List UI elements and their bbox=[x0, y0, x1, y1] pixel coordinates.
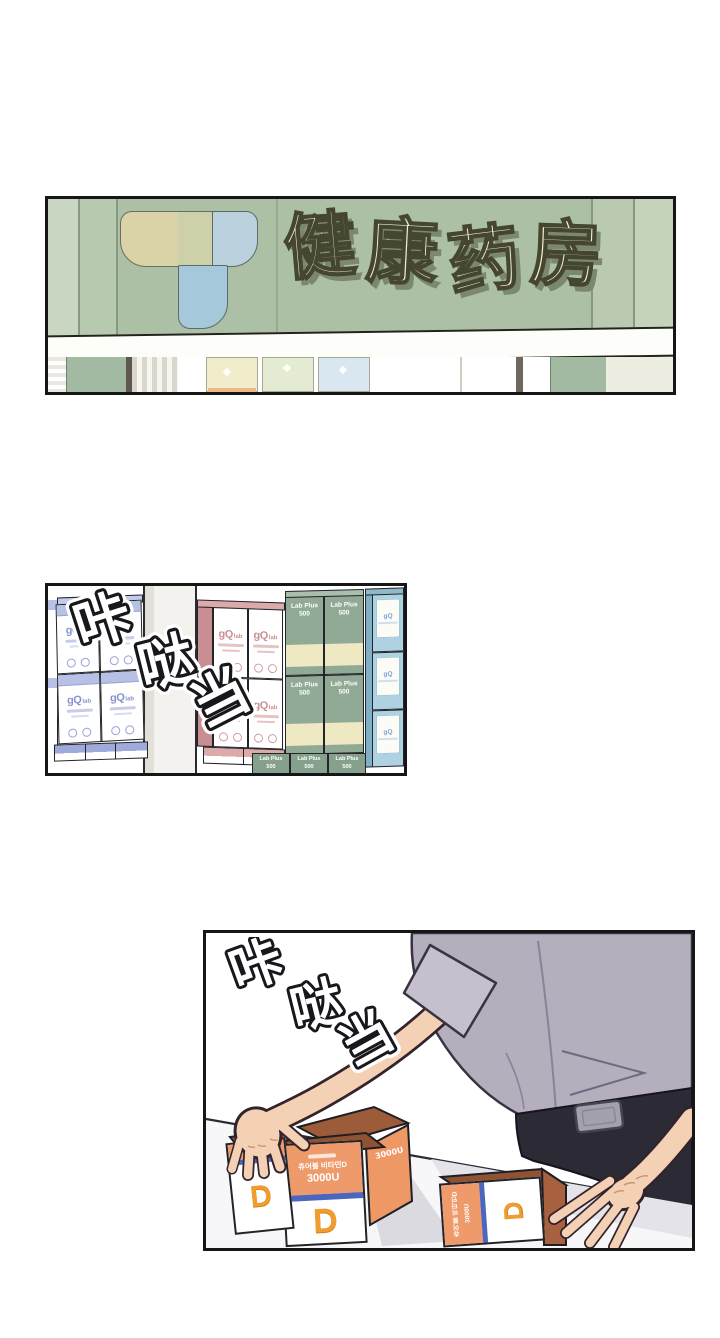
store-pillar bbox=[550, 357, 607, 392]
window-pane-yellow bbox=[206, 357, 258, 392]
box-cream-band bbox=[325, 722, 363, 745]
medicine-box: Lab Plus500 bbox=[324, 674, 364, 754]
sign-strip bbox=[48, 199, 78, 357]
box-label-panel: gQ bbox=[376, 598, 400, 638]
sign-joint-line bbox=[116, 199, 118, 357]
window-pane-green bbox=[262, 357, 314, 392]
sfx-kadadang: 咔 咔 哒 哒 当 当 bbox=[52, 588, 284, 760]
sign-char: 房 bbox=[529, 218, 603, 292]
box-cream-band bbox=[286, 723, 323, 746]
pharmacy-sign-text: 健 康 药 房 bbox=[284, 211, 670, 333]
box-label-panel: gQ bbox=[376, 656, 400, 696]
logo-olive-tile bbox=[178, 211, 213, 267]
logo-lightblue-tile bbox=[212, 211, 258, 267]
sign-char: 康 bbox=[364, 215, 440, 291]
store-mullion-dark bbox=[516, 357, 523, 392]
storefront-strip bbox=[48, 357, 673, 392]
labplus-qty: 500 bbox=[299, 690, 310, 697]
brand-logo: gQ bbox=[383, 729, 392, 736]
box-label-panel: gQ bbox=[376, 714, 400, 754]
brand-logo: gQ bbox=[383, 671, 392, 678]
label-line bbox=[378, 738, 398, 741]
labplus-name: Lab Plus bbox=[291, 681, 318, 689]
medicine-box: gQ bbox=[372, 651, 404, 710]
sign-joint-line bbox=[78, 199, 80, 357]
right-arm-hand bbox=[554, 1119, 692, 1247]
medicine-box: Lab Plus500 bbox=[285, 596, 324, 676]
medicine-box: gQ bbox=[372, 593, 404, 652]
window-pane-blue bbox=[318, 357, 370, 392]
labplus-name: Lab Plus bbox=[330, 601, 357, 609]
box-cream-band bbox=[325, 643, 363, 666]
medicine-box: gQ bbox=[372, 709, 404, 767]
sfx-kadadang: 咔 咔 哒 哒 当 当 bbox=[210, 937, 426, 1099]
store-pillar bbox=[66, 357, 127, 392]
labplus-name: Lab Plus bbox=[330, 680, 357, 688]
label-line bbox=[378, 622, 398, 625]
sign-char: 药 bbox=[444, 221, 524, 301]
brand-logo: gQ bbox=[383, 613, 392, 620]
medicine-box: Lab Plus500 bbox=[285, 675, 324, 755]
svg-text:咔: 咔 bbox=[66, 588, 139, 661]
pharmacy-cross-icon bbox=[120, 205, 260, 333]
logo-beige-tile bbox=[120, 211, 180, 267]
store-detail bbox=[48, 357, 66, 392]
comic-page: 健 康 药 房 bbox=[0, 0, 720, 1338]
labplus-box-stack: Lab Plus500 Lab Plus500 Lab Plus500 Lab … bbox=[285, 595, 364, 755]
labplus-qty: 500 bbox=[299, 611, 310, 618]
panel-counter: 3000U 츄어블 비타민D 3000U D D bbox=[203, 930, 695, 1251]
store-orange-sliver bbox=[208, 388, 256, 392]
box-side-panel bbox=[365, 594, 372, 767]
store-shelf-detail bbox=[132, 357, 178, 392]
medicine-box: Lab Plus500 bbox=[324, 595, 364, 675]
panel-storefront: 健 康 药 房 bbox=[45, 196, 676, 395]
box-cream-band bbox=[286, 644, 323, 667]
medicine-box: Lab Plus500 bbox=[290, 753, 328, 774]
logo-blue-tile bbox=[178, 265, 228, 329]
svg-text:咔: 咔 bbox=[222, 937, 291, 1003]
medicine-box: Lab Plus500 bbox=[328, 753, 366, 774]
store-mullion-light bbox=[460, 357, 462, 392]
label-line bbox=[378, 680, 398, 683]
labplus-name: Lab Plus bbox=[291, 602, 318, 610]
panel-shelf: gQlab gQlab gQlab gQlab bbox=[45, 583, 407, 776]
labplus-qty: 500 bbox=[339, 689, 350, 696]
labplus-qty: 500 bbox=[339, 610, 350, 617]
store-cream-panel bbox=[606, 357, 673, 392]
teal-box-stack: gQ gQ gQ bbox=[365, 593, 404, 767]
sign-strip bbox=[78, 199, 116, 357]
sign-char: 健 bbox=[281, 208, 359, 286]
